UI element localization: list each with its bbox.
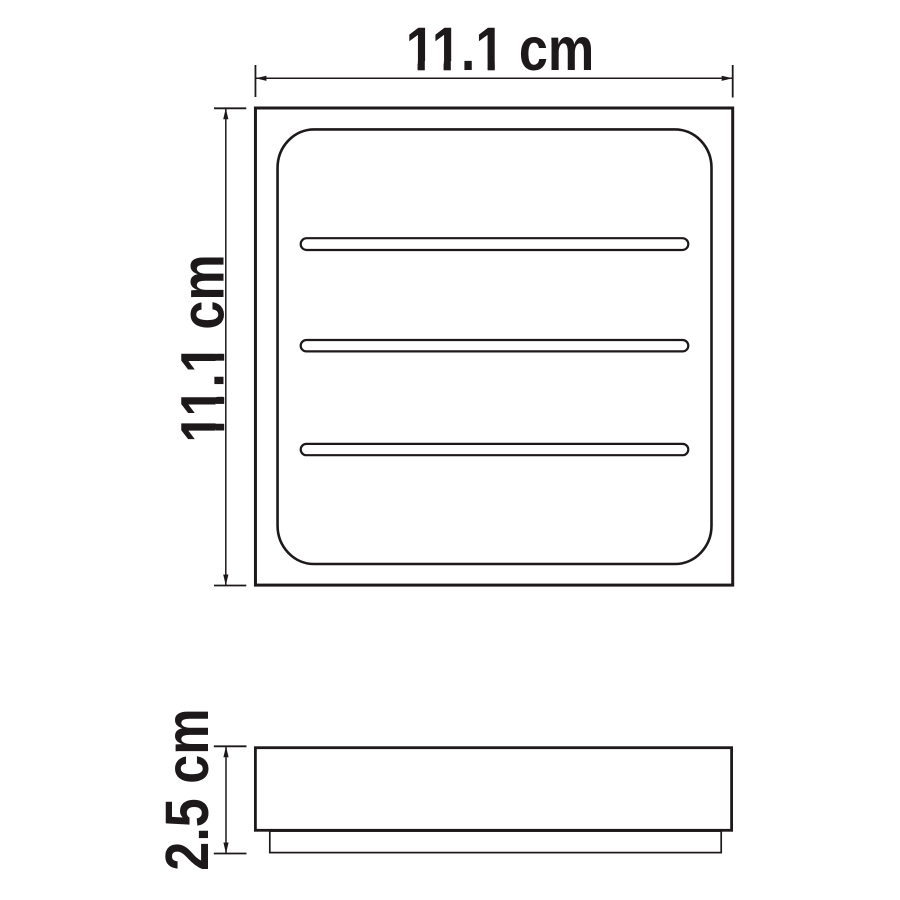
svg-text:2.5 cm: 2.5 cm [154, 708, 222, 870]
svg-text:11.1 cm: 11.1 cm [170, 254, 238, 443]
svg-text:11.1 cm: 11.1 cm [406, 16, 595, 84]
